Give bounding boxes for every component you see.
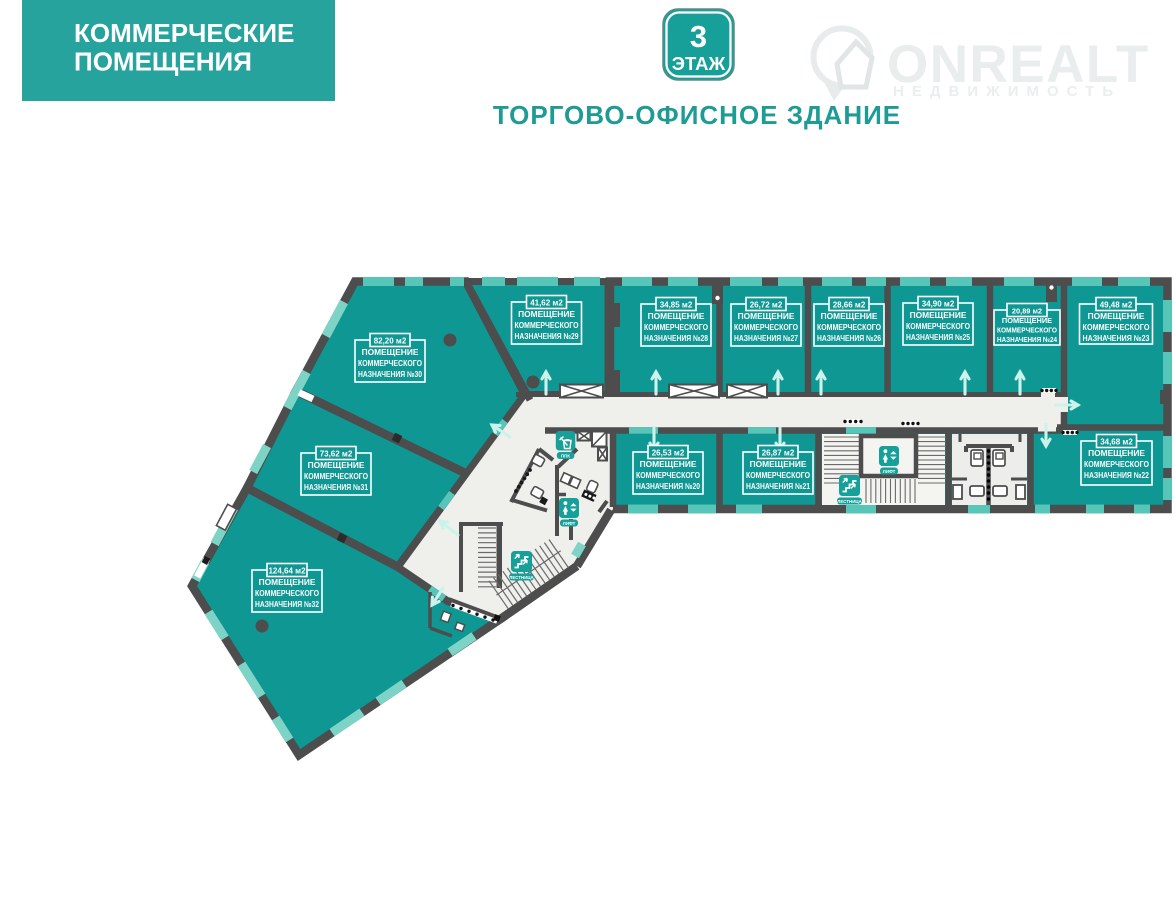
svg-text:НАЗНАЧЕНИЯ №28: НАЗНАЧЕНИЯ №28: [644, 333, 708, 343]
svg-text:НАЗНАЧЕНИЯ №26: НАЗНАЧЕНИЯ №26: [817, 333, 881, 343]
svg-text:НАЗНАЧЕНИЯ №24: НАЗНАЧЕНИЯ №24: [997, 335, 1058, 344]
svg-text:КОММЕРЧЕСКОГО: КОММЕРЧЕСКОГО: [515, 320, 579, 330]
svg-text:34,85 м2: 34,85 м2: [660, 300, 693, 309]
svg-text:41,62 м2: 41,62 м2: [530, 298, 563, 307]
svg-text:КОММЕРЧЕСКОГО: КОММЕРЧЕСКОГО: [358, 358, 422, 368]
svg-text:КОММЕРЧЕСКОГО: КОММЕРЧЕСКОГО: [906, 321, 970, 331]
svg-text:НАЗНАЧЕНИЯ №22: НАЗНАЧЕНИЯ №22: [1084, 470, 1149, 480]
svg-text:КОММЕРЧЕСКОГО: КОММЕРЧЕСКОГО: [636, 470, 700, 480]
svg-text:ПОМЕЩЕНИЕ: ПОМЕЩЕНИЕ: [750, 459, 807, 469]
svg-text:26,72 м2: 26,72 м2: [750, 300, 783, 309]
svg-text:КОММЕРЧЕСКОГО: КОММЕРЧЕСКОГО: [817, 322, 881, 332]
svg-text:ПОМЕЩЕНИЕ: ПОМЕЩЕНИЕ: [1002, 316, 1052, 325]
svg-text:НАЗНАЧЕНИЯ №30: НАЗНАЧЕНИЯ №30: [358, 369, 422, 379]
svg-text:ПОМЕЩЕНИЕ: ПОМЕЩЕНИЕ: [308, 460, 365, 470]
svg-text:ПОМЕЩЕНИЯ: ПОМЕЩЕНИЯ: [74, 47, 252, 77]
svg-text:НАЗНАЧЕНИЯ №31: НАЗНАЧЕНИЯ №31: [304, 482, 368, 492]
svg-text:ЛИФТ: ЛИФТ: [563, 521, 576, 526]
svg-text:49,48 м2: 49,48 м2: [1100, 300, 1133, 309]
svg-text:34,90 м2: 34,90 м2: [922, 299, 955, 308]
svg-text:КОММЕРЧЕСКОГО: КОММЕРЧЕСКОГО: [746, 470, 810, 480]
svg-text:НАЗНАЧЕНИЯ №20: НАЗНАЧЕНИЯ №20: [636, 481, 700, 491]
svg-text:124,64 м2: 124,64 м2: [268, 566, 306, 575]
svg-text:20,89 м2: 20,89 м2: [1012, 306, 1042, 315]
svg-text:КОММЕРЧЕСКОГО: КОММЕРЧЕСКОГО: [1083, 322, 1150, 332]
svg-text:КОММЕРЧЕСКИЕ: КОММЕРЧЕСКИЕ: [74, 18, 294, 48]
svg-text:3: 3: [690, 19, 707, 54]
svg-text:ПОМЕЩЕНИЕ: ПОМЕЩЕНИЕ: [259, 577, 316, 587]
svg-text:ПОМЕЩЕНИЕ: ПОМЕЩЕНИЕ: [518, 309, 575, 319]
svg-text:КОММЕРЧЕСКОГО: КОММЕРЧЕСКОГО: [734, 322, 798, 332]
svg-text:НЕДВИЖИМОСТЬ: НЕДВИЖИМОСТЬ: [893, 83, 1121, 100]
svg-text:82,20 м2: 82,20 м2: [374, 336, 407, 345]
svg-text:73,62 м2: 73,62 м2: [320, 449, 353, 458]
svg-text:КОММЕРЧЕСКОГО: КОММЕРЧЕСКОГО: [255, 588, 319, 598]
svg-text:КОММЕРЧЕСКОГО: КОММЕРЧЕСКОГО: [644, 322, 708, 332]
svg-text:НАЗНАЧЕНИЯ №23: НАЗНАЧЕНИЯ №23: [1083, 333, 1150, 343]
svg-text:34,68 м2: 34,68 м2: [1100, 437, 1133, 446]
svg-text:КОММЕРЧЕСКОГО: КОММЕРЧЕСКОГО: [997, 326, 1057, 335]
svg-text:ПОМЕЩЕНИЕ: ПОМЕЩЕНИЕ: [738, 311, 795, 321]
svg-text:ЛЕСТНИЦА: ЛЕСТНИЦА: [837, 499, 862, 504]
svg-text:НАЗНАЧЕНИЯ №27: НАЗНАЧЕНИЯ №27: [734, 333, 798, 343]
svg-text:НАЗНАЧЕНИЯ №32: НАЗНАЧЕНИЯ №32: [255, 599, 319, 609]
svg-text:НАЗНАЧЕНИЯ №25: НАЗНАЧЕНИЯ №25: [906, 332, 970, 342]
svg-text:КОММЕРЧЕСКОГО: КОММЕРЧЕСКОГО: [1084, 459, 1149, 469]
svg-text:ПОМЕЩЕНИЕ: ПОМЕЩЕНИЕ: [1088, 448, 1145, 458]
svg-text:ППК: ППК: [561, 454, 570, 459]
svg-text:ПОМЕЩЕНИЕ: ПОМЕЩЕНИЕ: [640, 459, 697, 469]
svg-text:ЛИФТ: ЛИФТ: [883, 469, 896, 474]
svg-text:ПОМЕЩЕНИЕ: ПОМЕЩЕНИЕ: [910, 310, 967, 320]
svg-text:26,53 м2: 26,53 м2: [652, 448, 685, 457]
svg-text:КОММЕРЧЕСКОГО: КОММЕРЧЕСКОГО: [304, 471, 368, 481]
svg-text:ЭТАЖ: ЭТАЖ: [672, 53, 726, 74]
svg-text:28,66 м2: 28,66 м2: [833, 300, 866, 309]
svg-text:НАЗНАЧЕНИЯ №29: НАЗНАЧЕНИЯ №29: [515, 331, 579, 341]
svg-text:ПОМЕЩЕНИЕ: ПОМЕЩЕНИЕ: [821, 311, 878, 321]
svg-text:НАЗНАЧЕНИЯ №21: НАЗНАЧЕНИЯ №21: [746, 481, 810, 491]
svg-text:ПОМЕЩЕНИЕ: ПОМЕЩЕНИЕ: [1088, 311, 1145, 321]
svg-text:ПОМЕЩЕНИЕ: ПОМЕЩЕНИЕ: [362, 347, 419, 357]
svg-text:ТОРГОВО-ОФИСНОЕ ЗДАНИЕ: ТОРГОВО-ОФИСНОЕ ЗДАНИЕ: [493, 100, 901, 130]
svg-text:ПОМЕЩЕНИЕ: ПОМЕЩЕНИЕ: [648, 311, 705, 321]
svg-text:26,87 м2: 26,87 м2: [762, 448, 795, 457]
svg-text:ЛЕСТНИЦА: ЛЕСТНИЦА: [509, 575, 534, 580]
